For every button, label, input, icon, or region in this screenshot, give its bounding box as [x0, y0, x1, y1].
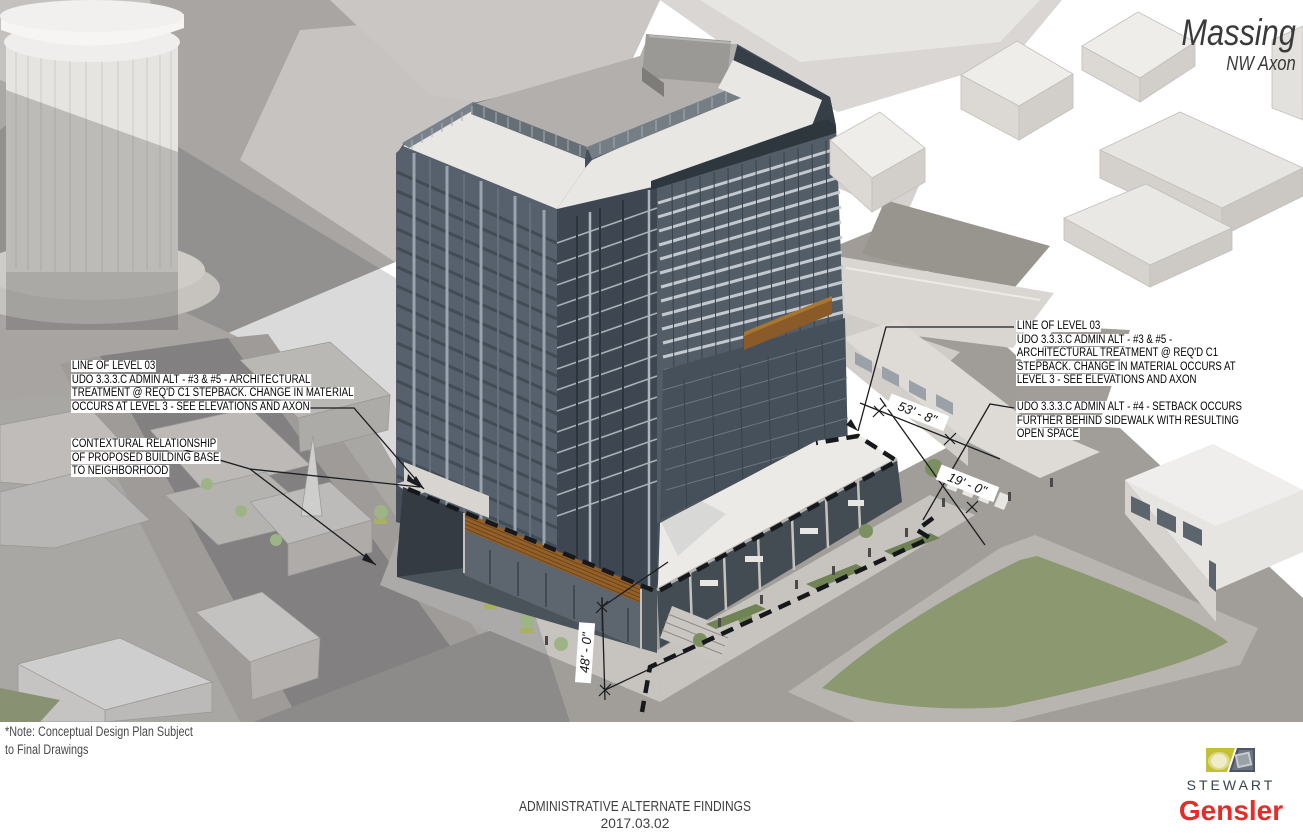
svg-text:48' - 0": 48' - 0" [577, 631, 595, 674]
